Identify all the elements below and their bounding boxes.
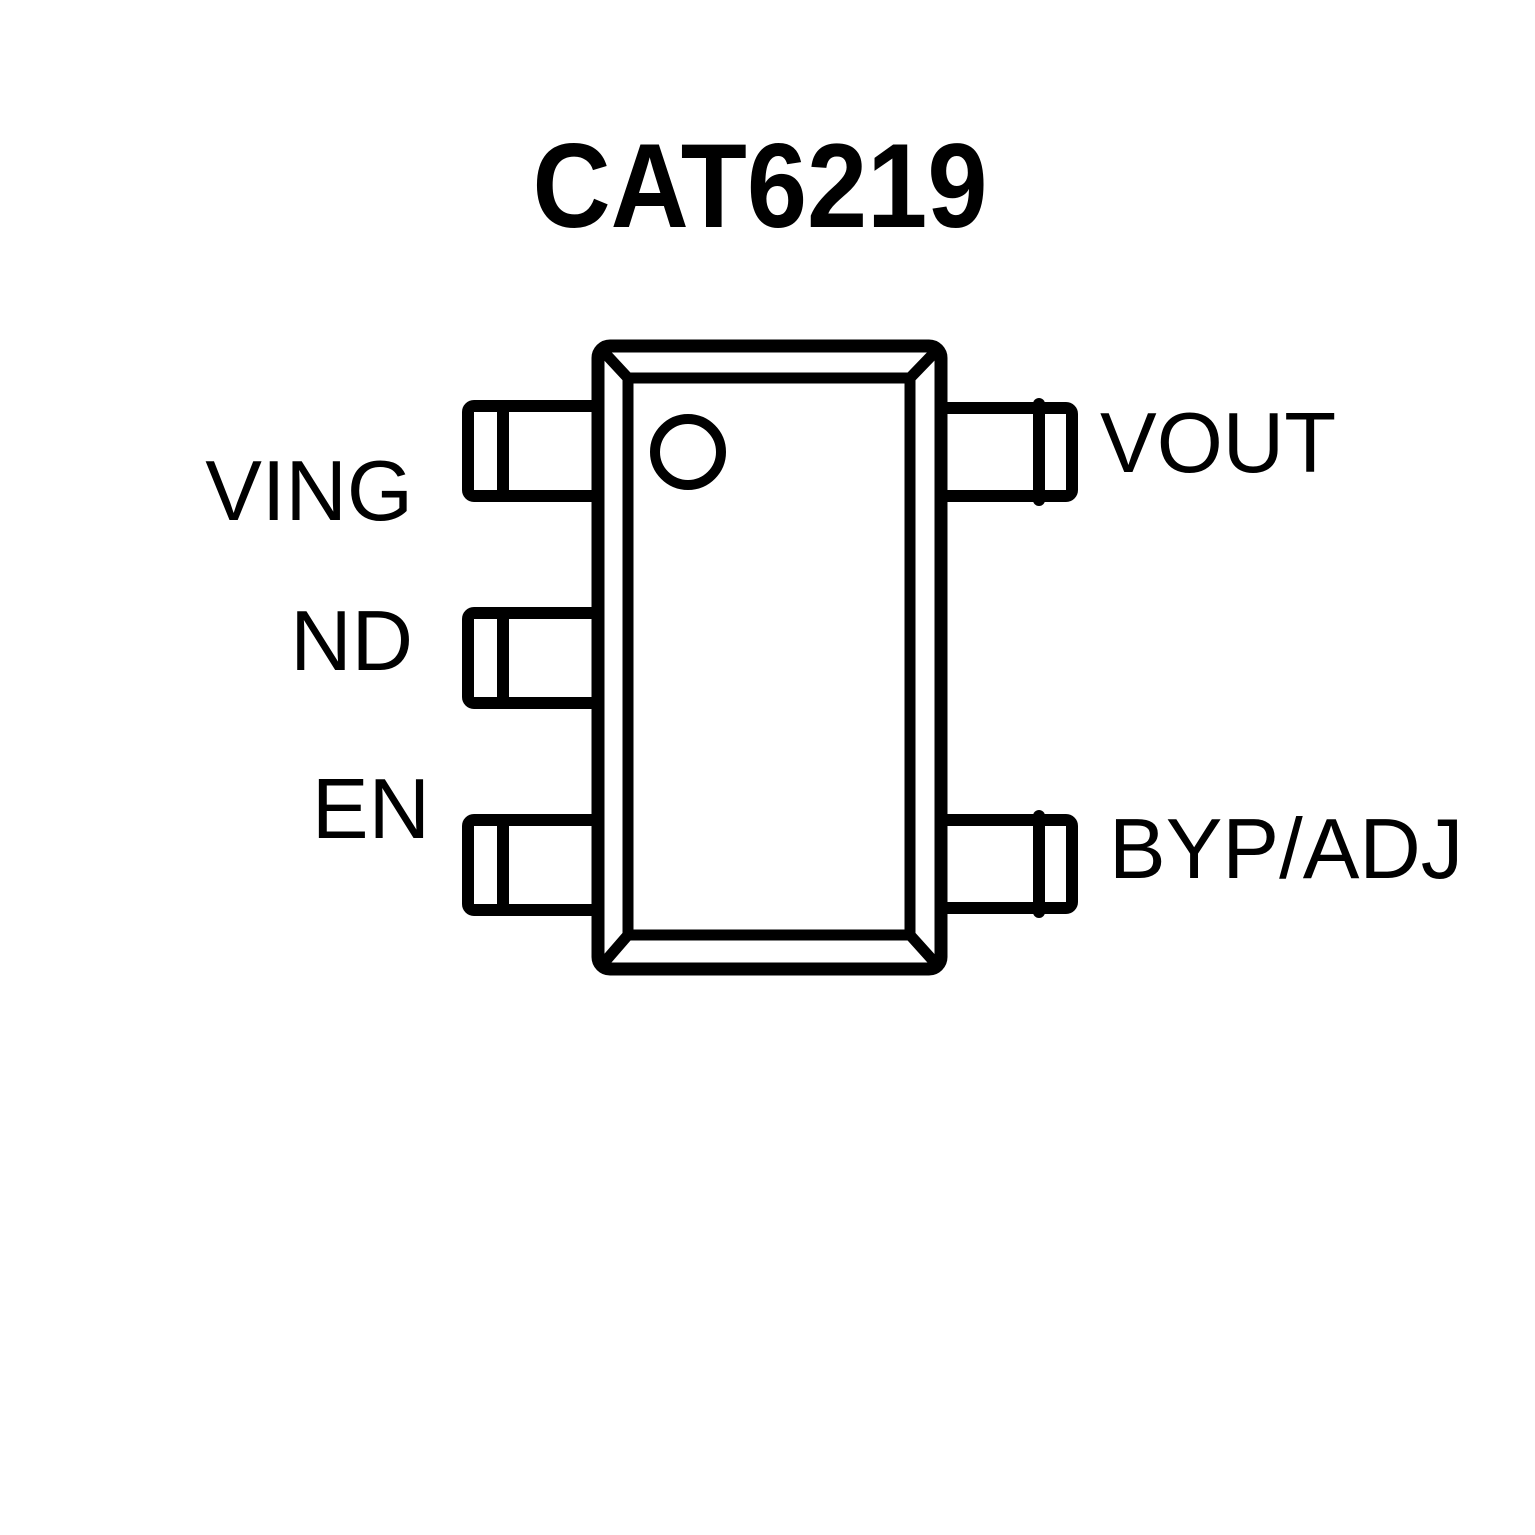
pin-en [468,820,598,910]
pin-vout-lead [941,408,1072,496]
chip-body [598,346,941,969]
pin-label-nd: ND [290,594,413,689]
pin-label-vout: VOUT [1100,396,1336,491]
package-outline [598,346,941,969]
pin-nd-lead [468,613,598,703]
pin-ving [468,406,598,496]
package-top-face [628,378,910,935]
pin-en-lead [468,820,598,910]
pin-label-en: EN [312,762,430,857]
pin-byp-adj [941,816,1072,912]
pin-label-ving: VING [205,444,413,539]
pin-vout [941,404,1072,500]
chip-pinout-svg: CAT6219 [0,0,1535,1535]
pin-ving-lead [468,406,598,496]
chip-title: CAT6219 [533,119,988,253]
pin-label-byp-adj: BYP/ADJ [1109,802,1463,897]
pin1-indicator-dot-icon [655,419,721,485]
pin-nd [468,613,598,703]
pin-byp-adj-lead [941,820,1072,908]
pinout-diagram: CAT6219 [0,0,1535,1535]
